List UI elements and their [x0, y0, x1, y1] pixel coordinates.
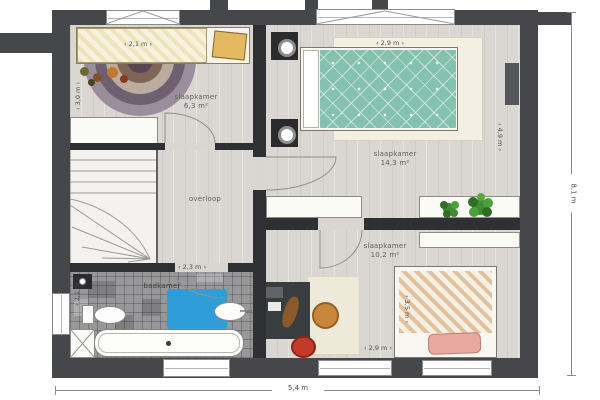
plant-leaf — [451, 201, 459, 209]
plant-leaf — [450, 209, 458, 217]
plan-linework — [0, 0, 600, 400]
plant-icon — [440, 201, 459, 218]
dim-bathroom-depth: 2,1 m — [73, 271, 81, 313]
dim-bedroom3-depth: 3,5 m — [403, 287, 411, 331]
dim-total-width: 5,4 m — [272, 384, 324, 395]
room-area: 10,2 m² — [371, 251, 400, 259]
plant-leaf — [483, 198, 493, 208]
bedroom2-label: slaapkamer 14,3 m² — [355, 150, 435, 168]
floor-plan: slaapkamer 6,3 m² slaapkamer 14,3 m² sla… — [0, 0, 600, 400]
bathroom-label: badkamer — [132, 282, 192, 291]
bedroom3-label: slaapkamer 10,2 m² — [345, 242, 425, 260]
dim-tick — [567, 375, 576, 376]
plant-leaf — [469, 207, 479, 217]
winder-lines — [70, 205, 150, 262]
room-name: slaapkamer — [374, 150, 417, 158]
room-area: 6,3 m² — [184, 102, 208, 110]
stair-curve — [70, 199, 150, 259]
tread-lines — [70, 160, 156, 193]
window-glazing-lines — [106, 11, 455, 24]
cabinet-x-icon — [71, 330, 94, 357]
plant-leaf — [482, 207, 492, 217]
plant-leaf — [440, 201, 448, 209]
room-name: slaapkamer — [175, 93, 218, 101]
window1-diagonal — [106, 11, 180, 24]
plant-icon-large — [468, 193, 493, 217]
dim-tick — [567, 12, 576, 13]
dim-bedroom3-width: 2,9 m — [350, 344, 406, 352]
dim-total-height: 8,1 m — [567, 175, 578, 213]
bathtub-drain — [166, 341, 171, 346]
room-name: slaapkamer — [364, 242, 407, 250]
landing-label: overloop — [170, 195, 240, 204]
room-area: 14,3 m² — [381, 159, 410, 167]
dim-tick — [55, 386, 56, 395]
stair-treads — [70, 160, 156, 262]
bedroom1-label: slaapkamer 6,3 m² — [160, 93, 232, 111]
room-name: overloop — [189, 195, 221, 203]
room-name: badkamer — [144, 282, 181, 290]
dim-bathroom-width: 2,3 m — [166, 263, 218, 271]
window2-diagonal — [316, 11, 455, 24]
door-arc-bedroom1 — [165, 113, 215, 143]
dim-bedroom1-depth: 3,0 m — [74, 74, 82, 118]
plant-leaf — [443, 210, 451, 218]
dim-bedroom2-depth: 4,9 m — [496, 115, 504, 159]
dim-bedroom2-width: 2,9 m — [360, 39, 420, 47]
x-lines — [71, 330, 94, 357]
dim-tick — [539, 386, 540, 395]
plant-leaf — [468, 197, 478, 207]
dim-bedroom1-width: 2,1 m — [110, 40, 166, 48]
door-arc-bedroom2 — [266, 157, 336, 190]
plant-leaf — [477, 193, 485, 201]
